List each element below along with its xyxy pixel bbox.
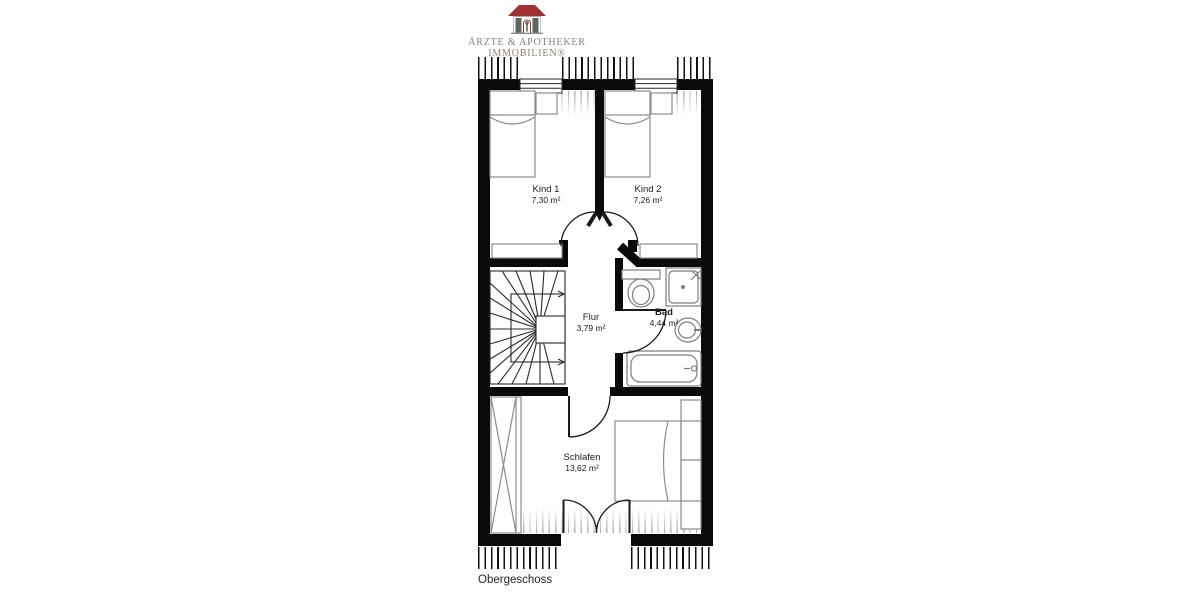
floor-title: Obergeschoss: [478, 574, 552, 586]
room-area: 7,30 m²: [532, 196, 561, 206]
toilet-tank: [622, 270, 660, 279]
furniture-kind2: [605, 91, 697, 258]
shower-drain: [682, 286, 685, 289]
wall-mid-bottom-right: [610, 387, 713, 396]
room-area: 4,44 m²: [650, 319, 679, 329]
room-area: 13,62 m²: [564, 464, 601, 474]
stair-landing-void: [536, 316, 565, 343]
room-label-flur: Flur 3,79 m²: [577, 313, 606, 334]
wall-right: [701, 79, 713, 546]
staircase: [490, 271, 565, 384]
room-label-kind1: Kind 1 7,30 m²: [532, 185, 561, 206]
wall-bottom-left: [478, 534, 561, 546]
bathtub-tap: [691, 366, 696, 371]
bed-kind2: [605, 91, 650, 177]
wall-under-kind1: [490, 258, 568, 267]
nightstand-kind1: [536, 93, 557, 114]
door-arc-french-right: [597, 500, 630, 533]
door-leaf-kind1: [588, 213, 596, 226]
wall-mid-bottom-left: [490, 387, 568, 396]
wall-bad-left-upper: [615, 258, 623, 311]
sink-basin: [679, 322, 696, 338]
dresser-kind1: [492, 244, 562, 258]
room-label-kind2: Kind 2 7,26 m²: [634, 185, 663, 206]
wall-bad-top: [636, 258, 701, 267]
room-area: 3,79 m²: [577, 324, 606, 334]
floorplan-drawing: [0, 0, 1200, 600]
room-area: 7,26 m²: [634, 196, 663, 206]
toilet-bowl-inner: [633, 286, 650, 305]
dresser-kind2: [640, 244, 697, 258]
headboard-column: [681, 400, 701, 529]
bed-kind1: [490, 91, 535, 177]
nightstand-kind2: [651, 93, 672, 114]
room-label-schlafen: Schlafen 13,62 m²: [564, 453, 601, 474]
door-arc-french-left: [564, 500, 597, 533]
furniture-kind1: [490, 91, 562, 258]
wall-kids-divider: [595, 88, 604, 212]
room-label-bad: Bad 4,44 m²: [650, 308, 679, 329]
door-leaf-kind2: [603, 213, 611, 226]
double-bed: [615, 421, 681, 501]
wall-left: [478, 79, 490, 546]
wall-bottom-right: [631, 534, 713, 546]
door-arc-schlafen: [569, 396, 610, 437]
floorplan-page: ÄRZTE & APOTHEKER IMMOBILIEN®: [0, 0, 1200, 600]
